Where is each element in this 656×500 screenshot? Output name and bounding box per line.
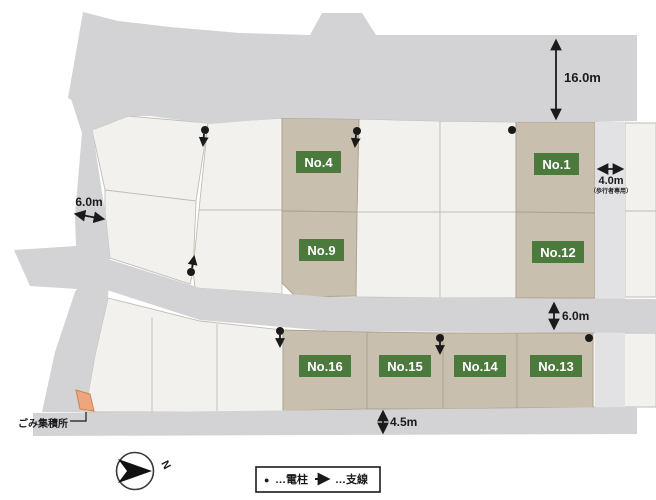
parcel	[356, 212, 440, 298]
lot-label-no4[interactable]: No.4	[296, 151, 341, 173]
lot-label-text: No.13	[538, 359, 573, 374]
parcel	[625, 211, 656, 297]
utility-pole-legend-icon: ●	[264, 475, 269, 485]
trash-area-label: ごみ集積所	[18, 417, 68, 430]
legend-pole-label: …電柱	[275, 472, 308, 486]
parcel	[357, 119, 440, 212]
lot-label-text: No.15	[387, 359, 422, 374]
parcel	[193, 210, 282, 294]
guy-wire-icon	[203, 134, 204, 145]
dimension-label: 6.0m	[562, 309, 589, 323]
legend-wire-label: …支線	[335, 472, 368, 486]
parcel	[199, 118, 282, 210]
dimension-label: 4.5m	[390, 415, 417, 429]
lot-label-no15[interactable]: No.15	[379, 355, 431, 377]
lot-label-text: No.1	[542, 157, 570, 172]
dimension-note: （歩行者専用）	[590, 187, 632, 195]
lot-label-text: No.16	[307, 359, 342, 374]
utility-pole-icon	[585, 334, 593, 342]
pedestrian-path	[595, 122, 625, 410]
lot-label-no14[interactable]: No.14	[454, 355, 506, 377]
parcel	[440, 121, 516, 212]
parcel	[440, 212, 516, 298]
plot-map-svg: ごみ集積所 No.4 No.1 No.9 No.12 No.16 No.15	[0, 0, 656, 500]
dimension-label: 6.0m	[75, 195, 102, 209]
lot-label-text: No.12	[540, 245, 575, 260]
dimension-label: 4.0m	[598, 175, 623, 187]
lot-label-text: No.9	[307, 243, 335, 258]
site-plan-map: ごみ集積所 No.4 No.1 No.9 No.12 No.16 No.15	[0, 0, 656, 500]
parcel	[625, 123, 656, 211]
lot-label-no1[interactable]: No.1	[534, 153, 579, 175]
guy-wire-icon	[355, 135, 356, 146]
lot-label-no13[interactable]: No.13	[530, 355, 582, 377]
lot-label-text: No.4	[304, 155, 333, 170]
top-road	[68, 12, 637, 130]
compass: N	[117, 453, 173, 490]
lot-label-no12[interactable]: No.12	[532, 241, 584, 263]
legend: ● …電柱 …支線	[256, 467, 380, 492]
parcel	[92, 116, 208, 201]
lot-label-no9[interactable]: No.9	[299, 239, 344, 261]
utility-pole-icon	[508, 126, 516, 134]
lot-label-no16[interactable]: No.16	[299, 355, 351, 377]
lot-label-text: No.14	[462, 359, 498, 374]
compass-north-label: N	[158, 459, 172, 472]
dimension-label: 16.0m	[564, 70, 601, 85]
